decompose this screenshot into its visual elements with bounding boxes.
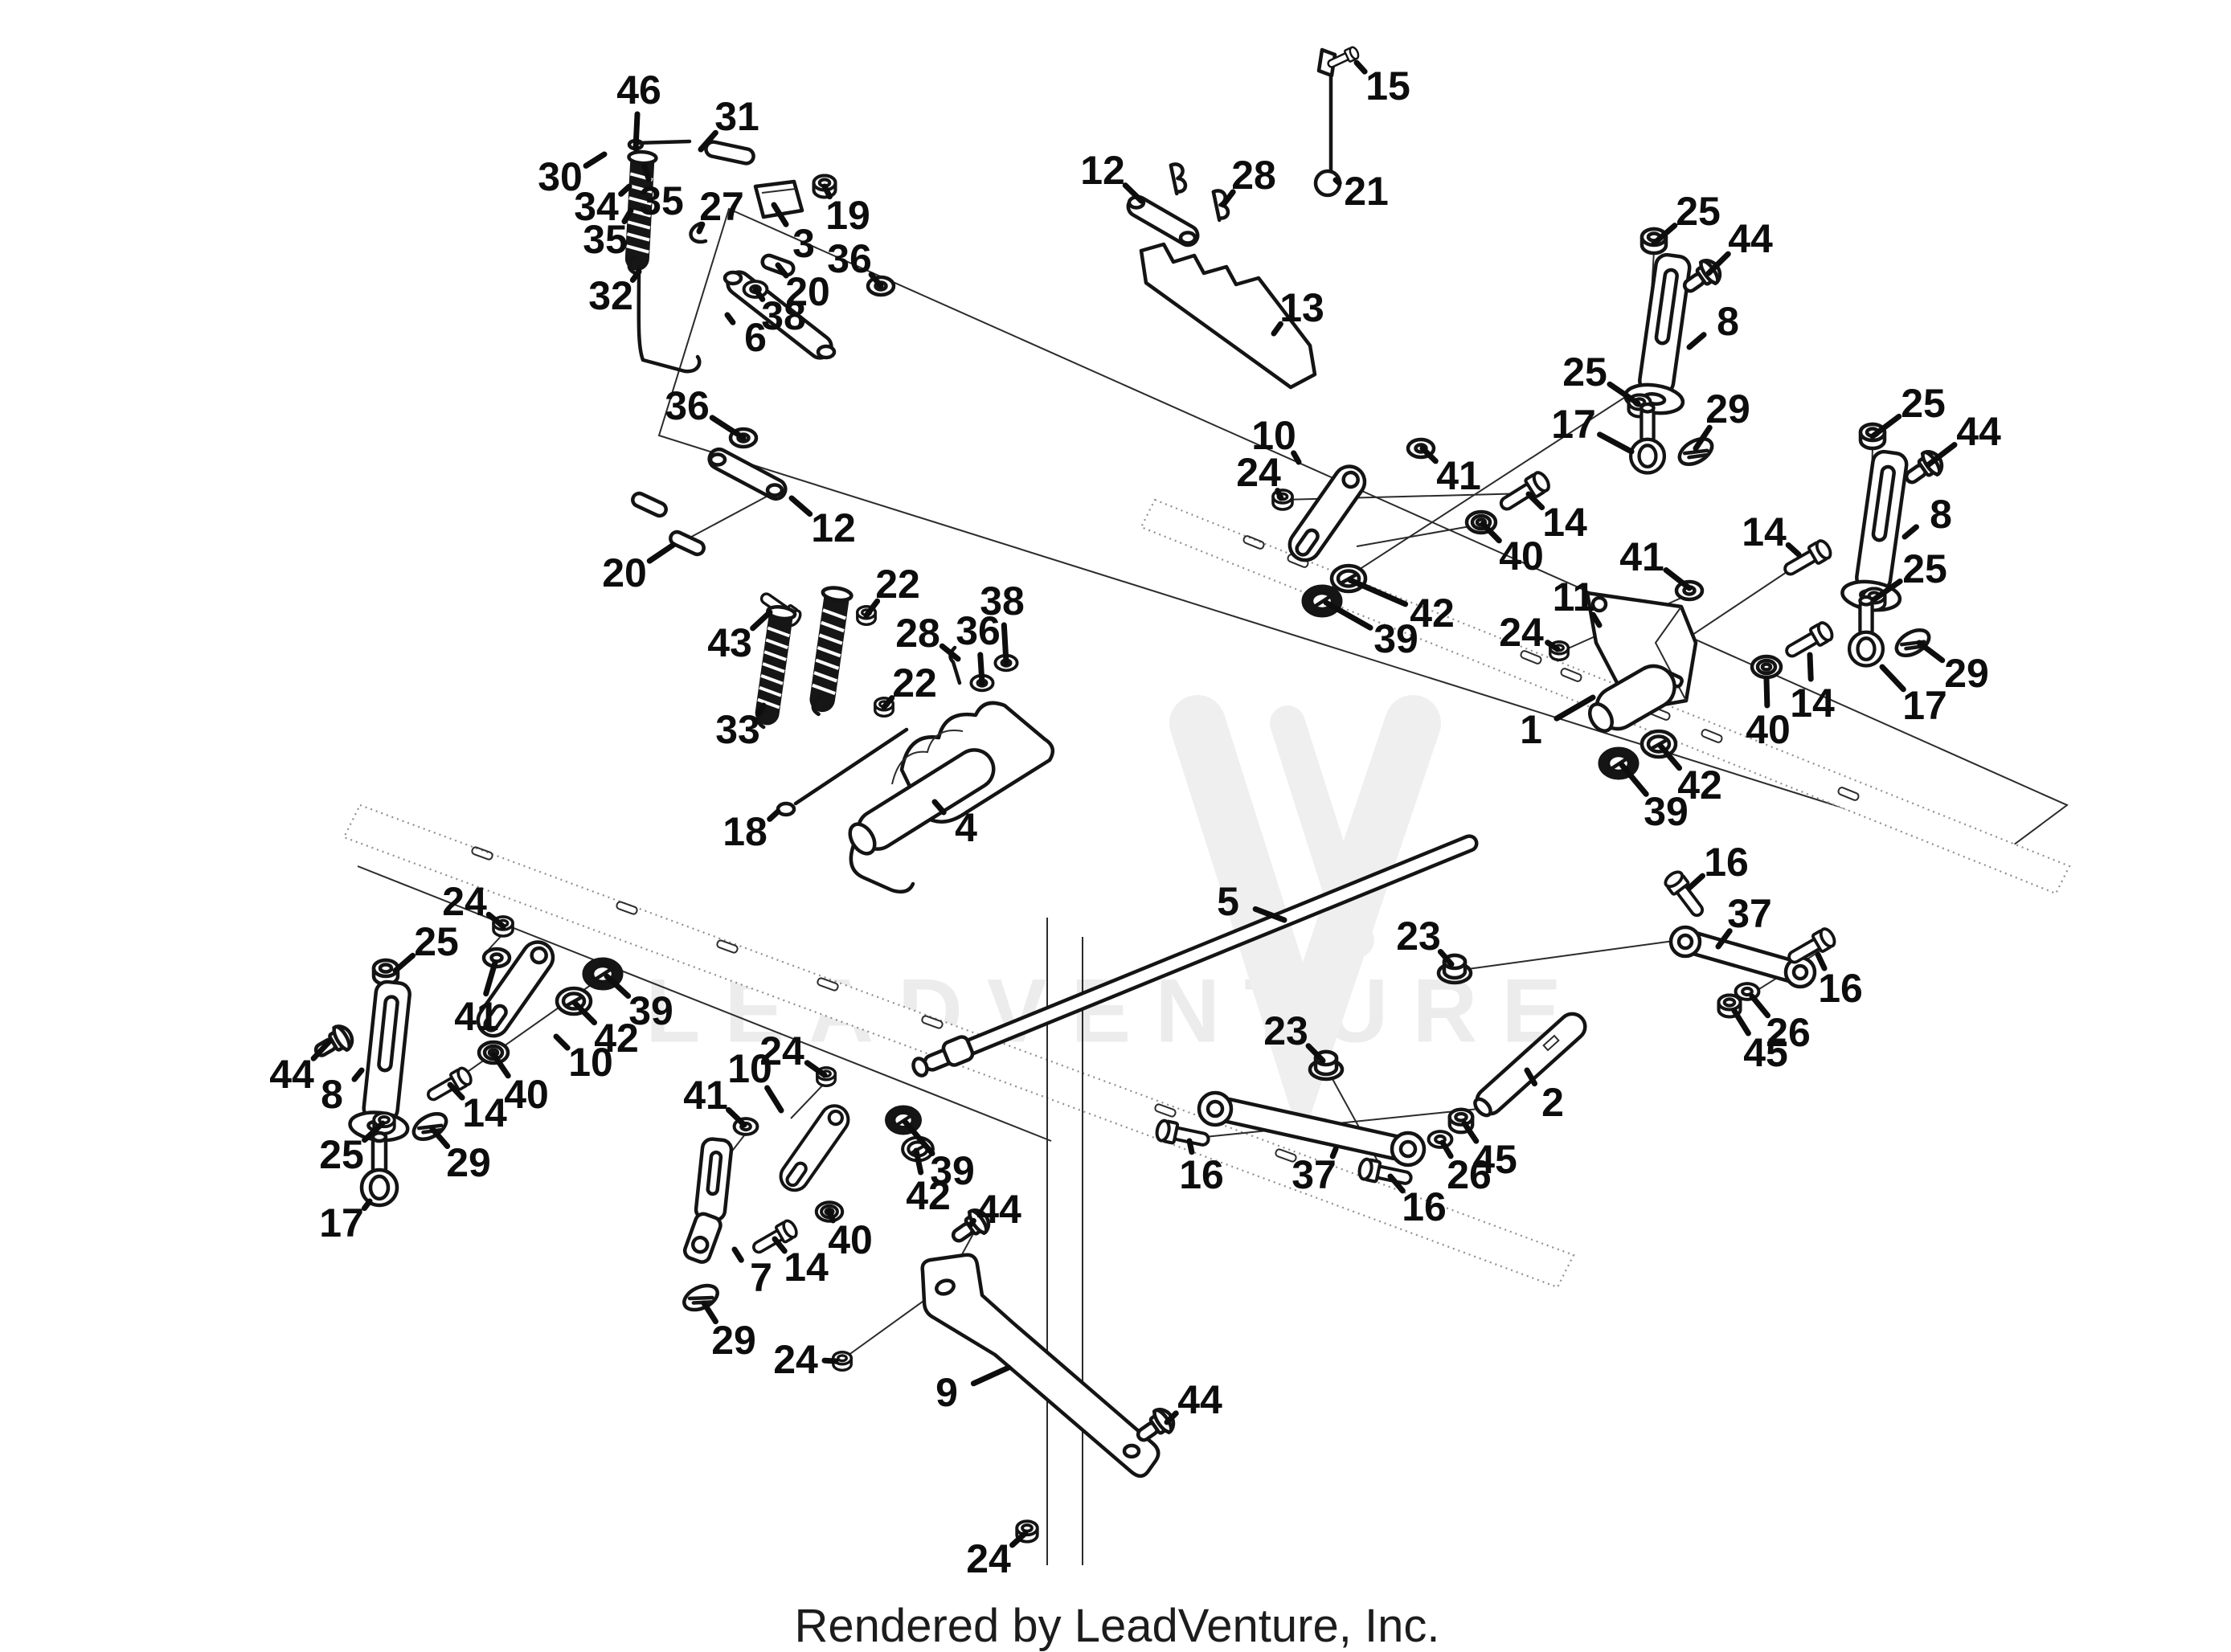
- leader-line-17: [1600, 435, 1631, 452]
- washer-26a: [1429, 1131, 1452, 1147]
- part-callout-18: 18: [723, 812, 768, 852]
- torque-rod-9: [923, 1255, 1158, 1476]
- part-callout-10: 10: [727, 1049, 772, 1089]
- part-callout-19: 19: [825, 195, 870, 235]
- part-callout-14: 14: [1742, 512, 1787, 552]
- leader-line-30: [586, 154, 604, 166]
- part-callout-2: 2: [1541, 1082, 1564, 1122]
- part-callout-45: 45: [1472, 1139, 1517, 1180]
- part-callout-24: 24: [1499, 612, 1544, 652]
- part-callout-35: 35: [583, 219, 628, 260]
- part-callout-36: 36: [665, 386, 710, 426]
- bracket-7: [682, 1137, 733, 1266]
- part-callout-1: 1: [1520, 709, 1542, 750]
- part-callout-35: 35: [639, 181, 684, 221]
- leader-line-14: [1788, 545, 1799, 554]
- leader-line-17: [1882, 667, 1903, 689]
- part-callout-40: 40: [828, 1220, 873, 1260]
- leader-line-6: [727, 315, 733, 322]
- leader-line-38: [1004, 625, 1006, 663]
- part-callout-27: 27: [699, 186, 744, 227]
- part-callout-28: 28: [1231, 155, 1276, 195]
- part-callout-13: 13: [1279, 288, 1324, 328]
- leader-line-10: [556, 1037, 567, 1048]
- part-callout-43: 43: [707, 623, 752, 663]
- part-callout-24: 24: [966, 1539, 1011, 1579]
- part-callout-40: 40: [504, 1074, 549, 1114]
- part-callout-39: 39: [628, 991, 673, 1031]
- part-callout-39: 39: [1373, 619, 1418, 659]
- part-callout-20: 20: [602, 553, 647, 593]
- hanger-bracket-cluster-right1: [1623, 229, 1725, 473]
- part-callout-46: 46: [616, 70, 661, 110]
- part-callout-37: 37: [1727, 893, 1772, 934]
- part-callout-22: 22: [875, 564, 920, 604]
- part-callout-24: 24: [442, 881, 487, 922]
- part-callout-15: 15: [1365, 66, 1410, 106]
- leader-line-36: [980, 655, 982, 683]
- leader-line-29: [1919, 643, 1942, 660]
- part-callout-8: 8: [321, 1074, 343, 1114]
- part-callout-16: 16: [1818, 968, 1863, 1008]
- leader-line-40: [1766, 679, 1767, 705]
- part-callout-4: 4: [955, 808, 977, 848]
- part-callout-14: 14: [1790, 683, 1835, 723]
- front-lift-arm-cluster: [681, 1068, 1178, 1542]
- leader-line-25: [395, 955, 413, 971]
- part-callout-33: 33: [715, 709, 760, 750]
- part-callout-44: 44: [1177, 1380, 1222, 1420]
- leader-line-15: [1357, 63, 1365, 72]
- stabilizer-link-upper: [1439, 869, 1837, 1119]
- part-callout-39: 39: [930, 1151, 975, 1191]
- leader-line-8: [1689, 335, 1704, 347]
- deck-frame-outline: [344, 209, 2069, 1565]
- leader-line-46: [636, 114, 637, 149]
- part-callout-23: 23: [1396, 916, 1441, 956]
- part-callout-21: 21: [1344, 171, 1389, 211]
- part-callout-29: 29: [446, 1143, 491, 1183]
- leader-line-8: [354, 1070, 362, 1079]
- diagram-line-art: [0, 0, 2231, 1652]
- lift-shaft-5: [911, 834, 1479, 1077]
- part-callout-45: 45: [1743, 1032, 1788, 1073]
- pivot-assembly-4: [778, 703, 1053, 892]
- part-callout-36: 36: [827, 239, 872, 279]
- leader-line-14: [1810, 655, 1811, 679]
- part-callout-16: 16: [1402, 1187, 1447, 1227]
- part-callout-25: 25: [319, 1135, 364, 1175]
- leader-line-12: [792, 498, 810, 514]
- part-callout-40: 40: [1746, 709, 1791, 750]
- part-callout-39: 39: [1644, 791, 1689, 832]
- leader-line-9: [973, 1368, 1009, 1384]
- part-callout-17: 17: [1551, 404, 1596, 444]
- part-callout-29: 29: [711, 1320, 756, 1360]
- part-callout-44: 44: [1728, 219, 1773, 259]
- part-callout-7: 7: [750, 1257, 772, 1298]
- part-callout-37: 37: [1292, 1155, 1337, 1195]
- height-index-cluster: [1124, 46, 1360, 387]
- part-callout-24: 24: [773, 1339, 818, 1380]
- bushing-39c: [1302, 585, 1342, 617]
- part-callout-44: 44: [269, 1054, 314, 1094]
- part-callout-24: 24: [1236, 452, 1281, 493]
- part-callout-22: 22: [892, 663, 937, 703]
- part-callout-14: 14: [1542, 502, 1587, 542]
- lift-rod-32: [639, 267, 700, 371]
- spring-33b: [806, 587, 852, 717]
- part-callout-25: 25: [1902, 549, 1947, 589]
- part-callout-10: 10: [1251, 415, 1296, 456]
- leader-line-20: [649, 545, 673, 561]
- part-callout-41: 41: [454, 996, 499, 1037]
- part-callout-29: 29: [1705, 389, 1750, 429]
- pin-20b: [631, 491, 669, 517]
- leader-line-18: [770, 812, 778, 819]
- part-callout-25: 25: [1901, 383, 1946, 423]
- part-callout-41: 41: [1619, 537, 1664, 577]
- parts-diagram-page: LEADVENTURE: [0, 0, 2231, 1652]
- part-callout-3: 3: [792, 223, 815, 264]
- eyebolt-17c: [362, 1133, 397, 1205]
- crank-arm: [636, 141, 690, 143]
- clip-29d: [681, 1281, 722, 1315]
- part-callout-16: 16: [1704, 842, 1749, 882]
- part-callout-20: 20: [785, 272, 830, 312]
- part-callout-44: 44: [1956, 411, 2001, 452]
- part-callout-41: 41: [1436, 456, 1481, 496]
- lift-arm-10b: [776, 1101, 854, 1196]
- rendered-by-footer: Rendered by LeadVenture, Inc.: [795, 1599, 1440, 1652]
- clip-29b: [1892, 625, 1933, 661]
- part-callout-41: 41: [683, 1075, 728, 1115]
- leader-line-34: [621, 186, 629, 194]
- leader-line-10: [768, 1088, 781, 1110]
- part-callout-25: 25: [1676, 191, 1721, 231]
- leader-line-21: [1336, 180, 1339, 183]
- part-callout-32: 32: [588, 276, 633, 316]
- washer-40d: [1752, 656, 1781, 677]
- clip-29: [1675, 434, 1716, 470]
- part-callout-14: 14: [784, 1247, 829, 1287]
- part-callout-12: 12: [811, 508, 856, 548]
- leader-line-35: [645, 166, 649, 179]
- part-callout-44: 44: [976, 1189, 1021, 1229]
- part-callout-17: 17: [319, 1203, 364, 1243]
- leader-line-17: [365, 1201, 370, 1208]
- part-callout-16: 16: [1179, 1155, 1224, 1195]
- part-callout-12: 12: [1080, 150, 1125, 190]
- part-callout-31: 31: [714, 96, 759, 137]
- part-callout-38: 38: [980, 581, 1025, 621]
- part-callout-23: 23: [1263, 1011, 1308, 1051]
- pin-18: [796, 730, 907, 804]
- leader-line-8: [1905, 527, 1916, 537]
- part-callout-9: 9: [935, 1372, 958, 1413]
- part-callout-11: 11: [1553, 577, 1595, 617]
- part-callout-25: 25: [1562, 352, 1607, 392]
- flange-nut-23b: [1439, 955, 1471, 983]
- leader-line-24: [825, 1360, 836, 1361]
- spring-link-cluster: [631, 429, 1017, 730]
- hairpin-clip-28a: [1169, 162, 1189, 194]
- leader-line-16: [1689, 876, 1702, 888]
- pivot-shaft-2: [1472, 1008, 1590, 1119]
- part-callout-29: 29: [1944, 653, 1989, 693]
- part-callout-5: 5: [1217, 881, 1239, 922]
- part-callout-8: 8: [1717, 301, 1739, 341]
- grip-pin-31: [705, 141, 755, 165]
- leader-line-16: [1189, 1141, 1192, 1152]
- leader-line-44: [971, 1221, 973, 1225]
- part-callout-28: 28: [895, 613, 940, 653]
- part-callout-14: 14: [462, 1093, 507, 1133]
- part-callout-17: 17: [1902, 685, 1947, 726]
- part-callout-40: 40: [1499, 536, 1544, 576]
- part-callout-8: 8: [1930, 494, 1952, 534]
- leader-line-7: [735, 1249, 741, 1260]
- part-callout-25: 25: [414, 922, 459, 962]
